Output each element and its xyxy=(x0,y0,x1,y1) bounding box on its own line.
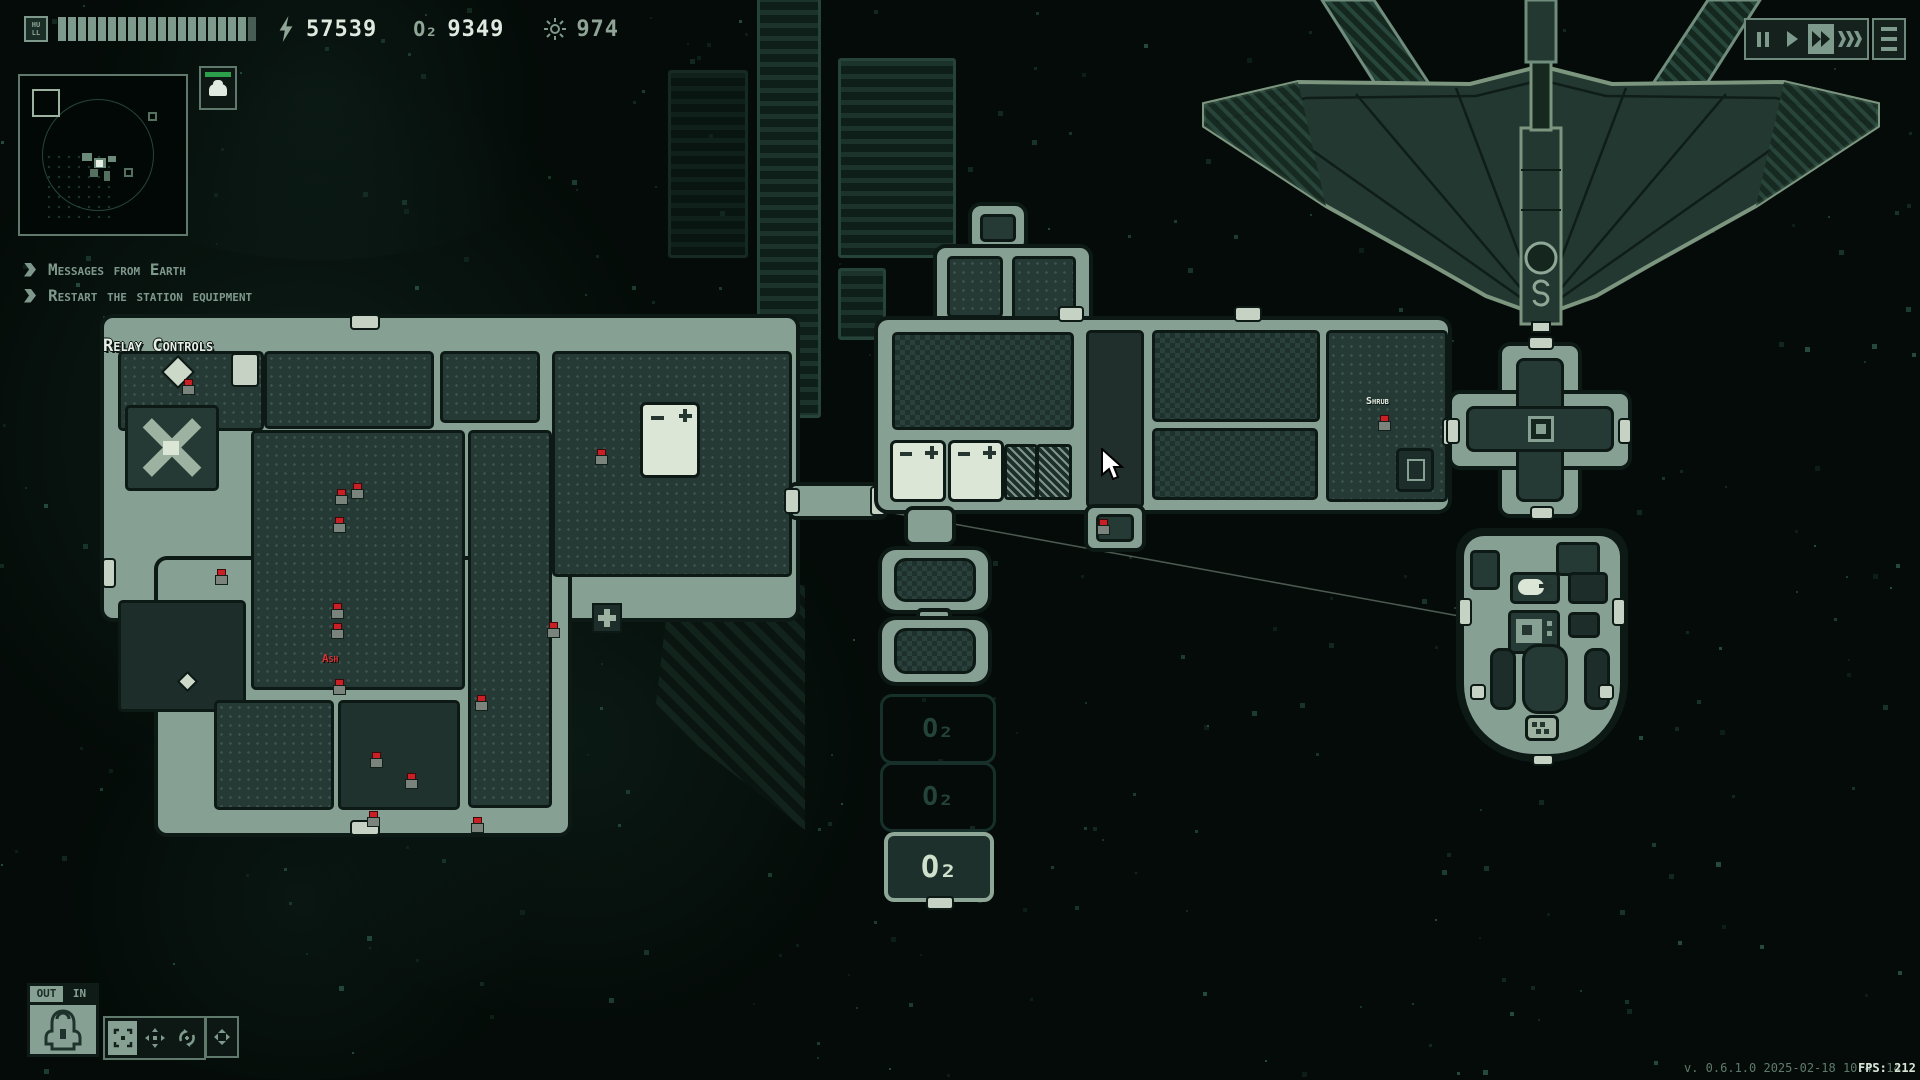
hull-segment xyxy=(158,17,166,41)
ship-tank[interactable] xyxy=(1490,648,1516,710)
top-resource-bar: HULL 57539 O₂ 9349 974 xyxy=(24,16,619,42)
crew-status-button[interactable] xyxy=(199,66,237,110)
door[interactable] xyxy=(233,355,257,385)
crew-marker[interactable] xyxy=(332,624,343,639)
o2-module-ghost[interactable]: O₂ xyxy=(880,762,996,832)
corridor[interactable] xyxy=(792,486,884,516)
hull-segment xyxy=(198,17,206,41)
o2-module-core xyxy=(894,628,976,674)
crew-marker[interactable] xyxy=(336,490,347,505)
ship-room[interactable] xyxy=(1556,542,1600,576)
room[interactable] xyxy=(251,430,465,690)
crew-name-label: Ash xyxy=(322,652,338,665)
door[interactable] xyxy=(352,316,378,328)
sun-value: 974 xyxy=(576,17,619,42)
door[interactable] xyxy=(1532,508,1552,518)
camera-rotate-button[interactable] xyxy=(172,1021,201,1055)
crew-marker[interactable] xyxy=(352,484,363,499)
hull-integrity-bar xyxy=(58,17,256,41)
minimap-station-blip xyxy=(104,171,110,181)
game-viewport[interactable]: Relay Controls Ash Shrub xyxy=(0,0,1920,1080)
door[interactable] xyxy=(1620,420,1630,442)
ship-room[interactable] xyxy=(1470,550,1500,590)
crew-portrait-icon xyxy=(213,80,223,88)
minimap-station-blip xyxy=(82,153,92,161)
crew-marker[interactable] xyxy=(368,812,379,827)
medical-device[interactable] xyxy=(594,605,620,631)
crew-marker[interactable] xyxy=(183,380,194,395)
room[interactable] xyxy=(214,700,334,810)
minimap-viewport-rect[interactable] xyxy=(32,89,60,117)
o2-module-active[interactable]: O₂ xyxy=(884,832,994,902)
power-value: 57539 xyxy=(306,17,377,42)
hull-segment xyxy=(178,17,186,41)
room[interactable] xyxy=(980,214,1016,242)
ship-tank[interactable] xyxy=(1584,648,1610,710)
battery-device[interactable] xyxy=(890,440,946,502)
o2-connector xyxy=(928,898,952,908)
crew-marker[interactable] xyxy=(548,623,559,638)
crew-marker[interactable] xyxy=(332,604,343,619)
crew-marker[interactable] xyxy=(1379,416,1390,431)
menu-button[interactable] xyxy=(1872,18,1906,60)
camera-controls xyxy=(103,1016,206,1060)
door[interactable] xyxy=(1530,338,1552,348)
door[interactable] xyxy=(1236,308,1260,320)
room[interactable] xyxy=(118,600,246,712)
door[interactable] xyxy=(1614,600,1624,624)
battery-device[interactable] xyxy=(948,440,1004,502)
hull-segment xyxy=(208,17,216,41)
room-label-relay-controls: Relay Controls xyxy=(103,336,213,356)
hull-segment xyxy=(228,17,236,41)
power-icon xyxy=(276,16,296,42)
unit-panel[interactable]: OUT IN xyxy=(27,983,99,1057)
o2-module-core xyxy=(894,558,976,602)
hull-segment xyxy=(58,17,66,41)
machine-x[interactable] xyxy=(133,413,211,483)
minimap-station-blip xyxy=(90,169,98,177)
hull-segment xyxy=(128,17,136,41)
o2-module-ghost[interactable]: O₂ xyxy=(880,694,996,764)
hull-segment xyxy=(248,17,256,41)
room[interactable] xyxy=(1152,428,1318,500)
time-controls xyxy=(1744,18,1869,60)
hull-segment xyxy=(168,17,176,41)
chevron-right-icon xyxy=(24,263,36,277)
floor-grate xyxy=(1004,444,1038,500)
crew-health-bar xyxy=(205,72,231,77)
fps-counter: FPS: 212 xyxy=(1858,1061,1916,1075)
door[interactable] xyxy=(786,490,798,512)
crew-marker[interactable] xyxy=(476,696,487,711)
hull-light xyxy=(1600,686,1612,698)
rotate-icon xyxy=(177,1028,197,1048)
room-corridor[interactable] xyxy=(468,430,552,808)
crew-marker[interactable] xyxy=(472,818,483,833)
sun-icon xyxy=(544,18,566,40)
crew-marker[interactable] xyxy=(596,450,607,465)
fast-forward-button[interactable] xyxy=(1808,24,1834,54)
hull-segment xyxy=(88,17,96,41)
mouse-cursor xyxy=(1100,448,1126,484)
room[interactable] xyxy=(338,700,460,810)
pause-button[interactable] xyxy=(1750,24,1776,54)
hull-segment xyxy=(78,17,86,41)
ship-room[interactable] xyxy=(1568,572,1608,604)
ship-pod[interactable] xyxy=(1522,644,1568,714)
minimap-player-blip xyxy=(96,160,103,167)
minimap-object-blip xyxy=(124,168,133,177)
hull-segment xyxy=(108,17,116,41)
menu-icon xyxy=(1881,27,1897,31)
hull-segment xyxy=(68,17,76,41)
crew-marker[interactable] xyxy=(216,570,227,585)
hull-light xyxy=(1472,686,1484,698)
cross-hub xyxy=(1528,416,1554,442)
crew-marker[interactable] xyxy=(406,774,417,789)
hull-segment xyxy=(148,17,156,41)
notification-label: Messages from Earth xyxy=(48,260,186,279)
camera-focus-button[interactable] xyxy=(108,1021,137,1055)
vent-grille xyxy=(1528,718,1556,738)
door[interactable] xyxy=(1460,600,1470,624)
room[interactable] xyxy=(1152,330,1320,422)
room[interactable] xyxy=(264,351,434,429)
hull-segment xyxy=(138,17,146,41)
minimap[interactable] xyxy=(18,74,188,236)
play-button[interactable] xyxy=(1779,24,1805,54)
camera-pan-button[interactable] xyxy=(140,1021,169,1055)
o2-connector xyxy=(908,510,952,542)
hull-segment xyxy=(188,17,196,41)
minimap-dust xyxy=(44,152,118,218)
door[interactable] xyxy=(1060,308,1082,320)
hull-icon: HULL xyxy=(24,16,48,42)
crew-marker[interactable] xyxy=(1098,520,1109,535)
crew-marker[interactable] xyxy=(334,518,345,533)
door[interactable] xyxy=(1534,756,1552,764)
notification-restart-equipment[interactable]: Restart the station equipment xyxy=(24,286,252,305)
hull-segment xyxy=(118,17,126,41)
hull-segment xyxy=(238,17,246,41)
crew-marker[interactable] xyxy=(334,680,345,695)
room[interactable] xyxy=(440,351,540,423)
hull-segment xyxy=(98,17,106,41)
device-cabinet[interactable] xyxy=(1396,448,1434,492)
minimap-object-blip xyxy=(148,112,157,121)
crew-marker[interactable] xyxy=(371,753,382,768)
notification-label: Restart the station equipment xyxy=(48,286,252,305)
tab-in[interactable]: IN xyxy=(63,986,96,1002)
room[interactable] xyxy=(892,332,1074,430)
notification-messages-from-earth[interactable]: Messages from Earth xyxy=(24,260,186,279)
o2-icon: O₂ xyxy=(413,17,437,41)
door[interactable] xyxy=(1448,420,1458,442)
battery-device[interactable] xyxy=(640,402,700,478)
ship-battery[interactable] xyxy=(1510,572,1560,604)
astronaut-icon xyxy=(30,1005,96,1055)
room[interactable] xyxy=(947,256,1003,318)
hull-segment xyxy=(218,17,226,41)
fastest-button[interactable] xyxy=(1837,24,1863,54)
minimap-station-blip xyxy=(108,156,116,162)
floor-grate xyxy=(1036,444,1072,500)
chevron-right-icon xyxy=(24,289,36,303)
oxygen-value: 9349 xyxy=(447,17,504,42)
tab-out[interactable]: OUT xyxy=(30,986,63,1002)
ship-room[interactable] xyxy=(1568,612,1600,638)
door[interactable] xyxy=(104,560,114,586)
focus-icon xyxy=(113,1028,133,1048)
zoom-fit-button[interactable] xyxy=(205,1016,239,1058)
pan-icon xyxy=(145,1028,165,1048)
crew-name-label: Shrub xyxy=(1366,396,1389,407)
collapse-arrows-icon xyxy=(212,1027,232,1047)
